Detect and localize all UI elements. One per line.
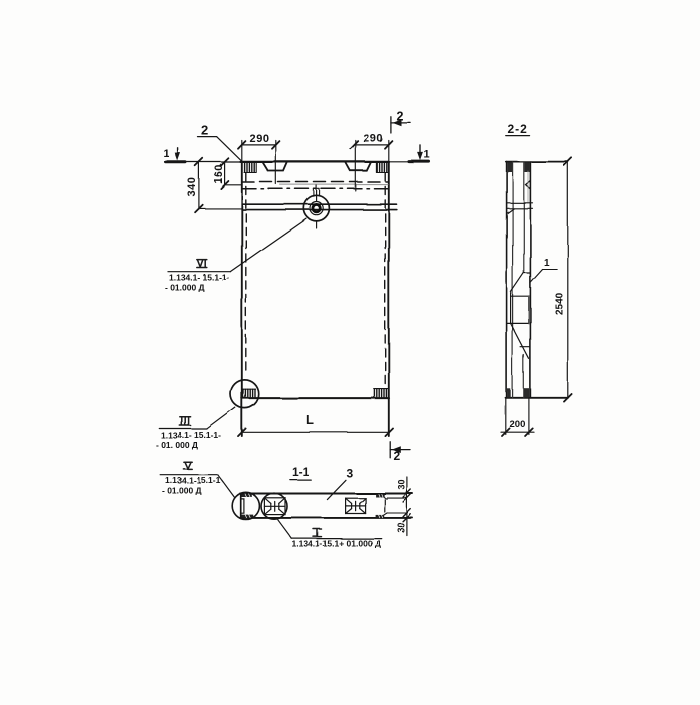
svg-text:30: 30	[397, 523, 407, 533]
svg-text:290: 290	[250, 133, 270, 145]
svg-text:1.134.1-15.1+ 01.000 Д: 1.134.1-15.1+ 01.000 Д	[292, 539, 381, 549]
svg-text:1-1: 1-1	[292, 465, 310, 479]
svg-text:1: 1	[544, 258, 550, 269]
svg-text:- 01. 000 Д: - 01. 000 Д	[156, 440, 198, 450]
svg-text:2: 2	[201, 123, 208, 138]
svg-text:2-2: 2-2	[508, 122, 528, 136]
svg-text:1.134.1- 15.1-1-: 1.134.1- 15.1-1-	[161, 430, 222, 440]
svg-text:160: 160	[213, 164, 225, 184]
svg-text:L: L	[306, 412, 314, 427]
svg-text:2540: 2540	[555, 292, 566, 315]
svg-text:2: 2	[394, 449, 401, 463]
svg-text:- 01.000 Д: - 01.000 Д	[162, 486, 202, 496]
svg-text:1.134.1- 15.1-1-: 1.134.1- 15.1-1-	[169, 273, 230, 283]
svg-text:1: 1	[164, 148, 170, 160]
svg-text:1.134.1-15.1-1: 1.134.1-15.1-1	[166, 476, 222, 486]
svg-text:- 01.000 Д: - 01.000 Д	[165, 283, 205, 293]
svg-text:1: 1	[423, 148, 429, 160]
svg-text:290: 290	[364, 133, 384, 145]
svg-text:340: 340	[186, 177, 198, 197]
svg-text:3: 3	[347, 467, 354, 481]
svg-text:30: 30	[396, 479, 406, 489]
svg-text:200: 200	[510, 419, 526, 430]
svg-text:2: 2	[397, 110, 404, 124]
